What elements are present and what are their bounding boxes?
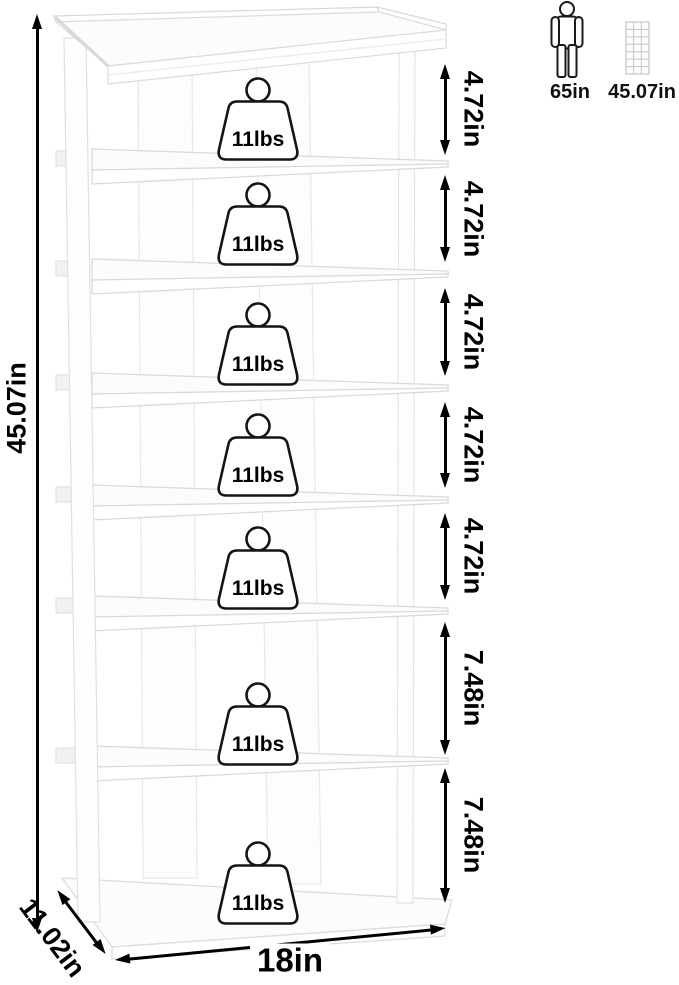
arrowhead-right-icon xyxy=(430,923,446,934)
product-dimension-diagram: 11lbs 11lbs 11lbs 11lbs 11lbs xyxy=(0,0,679,985)
dimension-line xyxy=(444,301,446,363)
weight-capacity-badge: 11lbs xyxy=(214,76,302,164)
arrowhead-down-icon xyxy=(440,585,450,600)
top-tray xyxy=(54,7,446,84)
shelf-gap-dimension-label: 4.72in xyxy=(460,294,487,371)
dimension-line xyxy=(444,415,446,475)
dimension-line xyxy=(444,188,446,249)
right-post xyxy=(397,26,415,903)
weight-label: 11lbs xyxy=(214,578,302,599)
weight-capacity-badge: 11lbs xyxy=(214,412,302,500)
mini-rack-icon xyxy=(625,21,650,75)
weight-label: 11lbs xyxy=(214,354,302,375)
dimension-line xyxy=(444,526,446,587)
dimension-line xyxy=(444,635,446,742)
shelf-gap-dimension-arrow xyxy=(440,513,451,600)
shelf-gap-dimension-label: 4.72in xyxy=(460,518,487,595)
arrowhead-down-icon xyxy=(440,740,450,755)
shoe-rack-illustration xyxy=(0,0,679,985)
height-dimension-label: 45.07in xyxy=(4,362,31,454)
weight-label: 11lbs xyxy=(214,734,302,755)
weight-capacity-badge: 11lbs xyxy=(214,525,302,613)
person-height-label: 65in xyxy=(550,82,590,102)
shelf-gap-dimension-arrow xyxy=(440,768,451,903)
weight-label: 11lbs xyxy=(214,129,302,150)
arrowhead-down-icon xyxy=(440,473,450,488)
shelf-gap-dimension-label: 4.72in xyxy=(460,407,487,484)
shelf-gap-dimension-arrow xyxy=(440,175,451,262)
shelf-gap-dimension-arrow xyxy=(440,288,451,376)
rack-height-label: 45.07in xyxy=(608,82,676,102)
weight-capacity-badge: 11lbs xyxy=(214,681,302,769)
weight-label: 11lbs xyxy=(214,465,302,486)
shelf-gap-dimension-arrow xyxy=(440,402,451,488)
arrowhead-down-icon xyxy=(440,361,450,376)
shelf-gap-dimension-arrow xyxy=(440,622,451,755)
dimension-line xyxy=(444,77,446,142)
weight-capacity-badge: 11lbs xyxy=(214,301,302,389)
shelf-gap-dimension-arrow xyxy=(440,64,451,155)
dimension-line xyxy=(36,27,38,920)
dimension-line xyxy=(444,781,446,890)
shelf-gap-dimension-label: 7.48in xyxy=(460,797,487,874)
person-icon xyxy=(549,1,585,79)
width-dimension-label: 18in xyxy=(250,944,330,977)
weight-capacity-badge: 11lbs xyxy=(214,181,302,269)
arrowhead-down-icon xyxy=(440,247,450,262)
weight-label: 11lbs xyxy=(214,893,302,914)
height-dimension-arrow xyxy=(32,14,43,933)
weight-capacity-badge: 11lbs xyxy=(214,840,302,928)
arrowhead-down-icon xyxy=(440,140,450,155)
shelf-gap-dimension-label: 4.72in xyxy=(460,181,487,258)
shelf-gap-dimension-label: 4.72in xyxy=(460,71,487,148)
shelf-gap-dimension-label: 7.48in xyxy=(460,650,487,727)
arrowhead-down-icon xyxy=(440,888,450,903)
weight-label: 11lbs xyxy=(214,234,302,255)
